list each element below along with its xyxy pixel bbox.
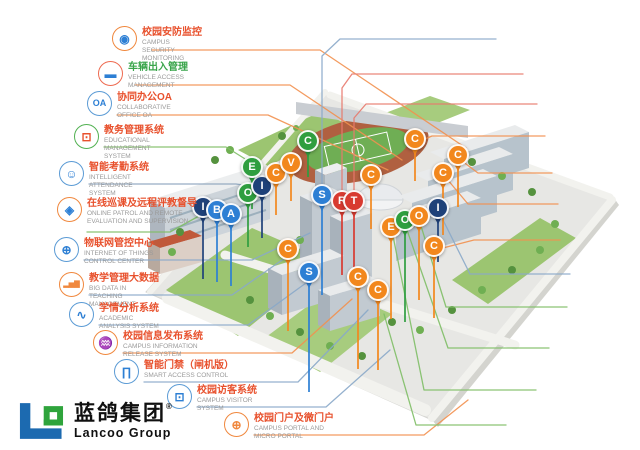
callout-title: 教务管理系统 xyxy=(104,125,164,137)
pin-stem xyxy=(414,151,416,181)
lancoo-logo-mark xyxy=(14,396,66,446)
globe-icon: ⊕ xyxy=(224,412,249,437)
map-pin-C: C xyxy=(423,235,445,257)
callout-title: 校园安防监控 xyxy=(142,27,202,39)
network-globe-icon: ⊕ xyxy=(54,237,79,262)
brand-name-en: Lancoo Group xyxy=(74,426,172,440)
map-pin-V: V xyxy=(280,152,302,174)
callout-title: 校园门户及微门户 xyxy=(254,413,334,425)
pin-stem xyxy=(404,232,406,322)
callout-subtitle: INTERNET OF THINGS CONTROL CENTER xyxy=(84,250,154,266)
callout-title: 校园信息发布系统 xyxy=(123,331,203,343)
map-pin-C: C xyxy=(367,279,389,301)
map-pin-C: C xyxy=(360,164,382,186)
pin-stem xyxy=(418,228,420,300)
callout-subtitle: CAMPUS VISITOR SYSTEM xyxy=(197,397,257,413)
cctv-camera-icon: ◉ xyxy=(112,26,137,51)
callout-title: 教学管理大数据 xyxy=(89,273,159,285)
callout-title: 车辆出入管理 xyxy=(128,62,188,74)
callout-subtitle: SMART ACCESS CONTROL xyxy=(144,372,234,380)
callout-online-patrol-remote-evaluation: ◈ 在线巡课及远程评教督导 ONLINE PATROL AND REMOTE E… xyxy=(57,197,197,226)
pin-stem xyxy=(216,222,218,282)
callout-title: 物联网管控中心 xyxy=(84,238,154,250)
pin-stem xyxy=(321,207,323,295)
pin-stem xyxy=(287,261,289,331)
callout-subtitle: CAMPUS PORTAL AND MICRO PORTAL xyxy=(254,425,334,441)
callout-title: 智能考勤系统 xyxy=(89,162,149,174)
monitor-icon: ⊡ xyxy=(74,124,99,149)
oa-icon: OA xyxy=(87,91,112,116)
callout-campus-information-release-system: ♒ 校园信息发布系统 CAMPUS INFORMATION RELEASE SY… xyxy=(93,330,203,359)
bar-chart-icon: ▂▅▇ xyxy=(59,272,84,297)
map-pin-C: C xyxy=(447,144,469,166)
callout-smart-access-control: ∏ 智能门禁（闸机版） SMART ACCESS CONTROL xyxy=(114,359,234,384)
map-pin-T: T xyxy=(343,190,365,212)
callout-academic-analysis-system: ∿ 学情分析系统 ACADEMIC ANALYSIS SYSTEM xyxy=(69,302,159,331)
callout-title: 协同办公OA xyxy=(117,92,172,104)
callout-subtitle: VEHICLE ACCESS MANAGEMENT xyxy=(128,74,188,90)
callout-campus-security-monitoring: ◉ 校园安防监控 CAMPUS SECURITY MONITORING xyxy=(112,26,202,63)
pin-stem xyxy=(341,213,343,275)
map-pin-C: C xyxy=(347,266,369,288)
robot-icon: ☺ xyxy=(59,161,84,186)
map-pin-S: S xyxy=(311,184,333,206)
map-pin-S: S xyxy=(298,261,320,283)
pin-stem xyxy=(433,258,435,318)
map-pin-A: A xyxy=(220,203,242,225)
pin-stem xyxy=(457,167,459,207)
pin-stem xyxy=(275,185,277,215)
shield-icon: ◈ xyxy=(57,197,82,222)
callout-subtitle: INTELLIGENT ATTENDANCE SYSTEM xyxy=(89,174,149,198)
car-icon: ▬ xyxy=(98,61,123,86)
pin-stem xyxy=(230,226,232,286)
lancoo-logo: 蓝鸽集团® Lancoo Group xyxy=(14,396,172,446)
callout-subtitle: EDUCATIONAL MANAGEMENT SYSTEM xyxy=(104,137,164,161)
smart-campus-infographic: { "brand": { "name_cn": "蓝鸽集团", "name_en… xyxy=(0,0,640,450)
lancoo-logo-text: 蓝鸽集团® Lancoo Group xyxy=(74,403,172,440)
callout-subtitle: CAMPUS INFORMATION RELEASE SYSTEM xyxy=(123,343,203,359)
callout-iot-control-center: ⊕ 物联网管控中心 INTERNET OF THINGS CONTROL CEN… xyxy=(54,237,154,266)
pin-stem xyxy=(247,205,249,247)
brand-name-cn: 蓝鸽集团® xyxy=(74,403,172,424)
callout-subtitle: ACADEMIC ANALYSIS SYSTEM xyxy=(99,315,159,331)
callout-campus-visitor-system: ⊡ 校园访客系统 CAMPUS VISITOR SYSTEM xyxy=(167,384,257,413)
map-pin-C: C xyxy=(404,128,426,150)
callout-vehicle-access-management: ▬ 车辆出入管理 VEHICLE ACCESS MANAGEMENT xyxy=(98,61,188,90)
pin-stem xyxy=(357,289,359,369)
callout-title: 智能门禁（闸机版） xyxy=(144,360,234,372)
trend-chart-icon: ∿ xyxy=(69,302,94,327)
map-pin-C: C xyxy=(432,162,454,184)
pin-stem xyxy=(377,302,379,370)
callout-campus-portal-and-micro-portal: ⊕ 校园门户及微门户 CAMPUS PORTAL AND MICRO PORTA… xyxy=(224,412,334,441)
map-pin-C: C xyxy=(297,130,319,152)
pin-stem xyxy=(308,284,310,392)
callout-title: 学情分析系统 xyxy=(99,303,159,315)
callout-subtitle: COLLABORATIVE OFFICE OA xyxy=(117,104,172,120)
map-pin-C: C xyxy=(277,238,299,260)
callout-title: 校园访客系统 xyxy=(197,385,257,397)
gate-icon: ∏ xyxy=(114,359,139,384)
pin-stem xyxy=(390,239,392,319)
callout-title: 在线巡课及远程评教督导 xyxy=(87,198,197,210)
pin-stem xyxy=(261,198,263,238)
callout-intelligent-attendance-system: ☺ 智能考勤系统 INTELLIGENT ATTENDANCE SYSTEM xyxy=(59,161,149,198)
callout-educational-management-system: ⊡ 教务管理系统 EDUCATIONAL MANAGEMENT SYSTEM xyxy=(74,124,164,161)
pin-stem xyxy=(370,187,372,229)
callout-collaborative-office-oa: OA 协同办公OA COLLABORATIVE OFFICE OA xyxy=(87,91,172,120)
callout-subtitle: ONLINE PATROL AND REMOTE EVALUATION AND … xyxy=(87,210,197,226)
callout-subtitle: CAMPUS SECURITY MONITORING xyxy=(142,39,202,63)
map-pin-O: O xyxy=(408,205,430,227)
pin-stem xyxy=(202,219,204,279)
map-pin-E: E xyxy=(241,156,263,178)
registered-mark: ® xyxy=(166,402,172,411)
map-pin-I: I xyxy=(427,197,449,219)
antenna-icon: ♒ xyxy=(93,330,118,355)
